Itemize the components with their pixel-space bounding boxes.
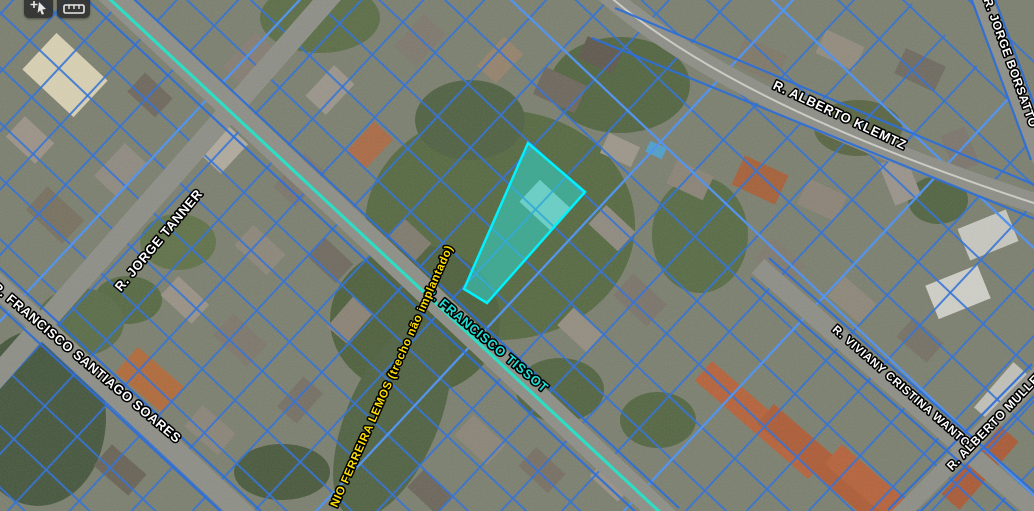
measure-tool-button[interactable] [57,0,90,18]
map-canvas[interactable]: R. JORGE TANNER R. FRANCISCO SANTIAGO SO… [0,0,1034,511]
ruler-icon [63,2,85,15]
select-zoom-tool-button[interactable] [24,0,53,18]
cursor-plus-icon [30,1,48,15]
map-viewport[interactable]: R. JORGE TANNER R. FRANCISCO SANTIAGO SO… [0,0,1034,511]
